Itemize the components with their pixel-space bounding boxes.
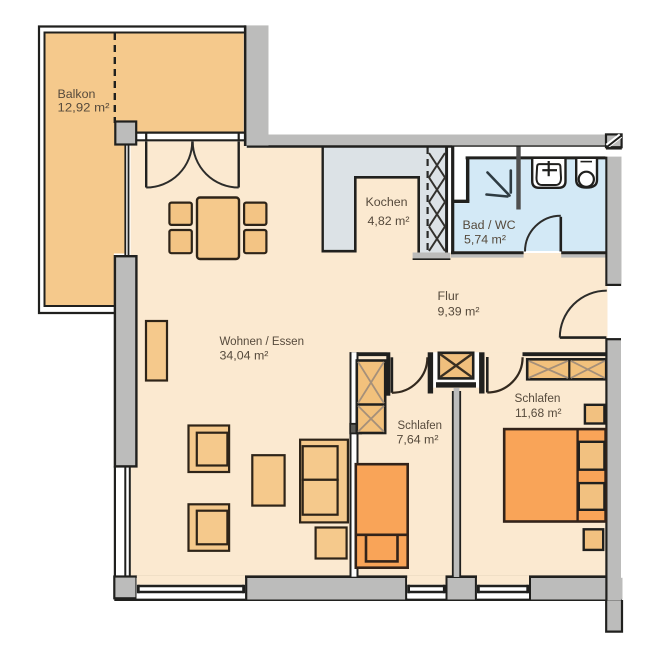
svg-text:Schlafen: Schlafen [398,418,443,432]
svg-text:12,92 m²: 12,92 m² [58,101,110,115]
svg-text:Wohnen / Essen: Wohnen / Essen [220,334,305,348]
svg-text:4,82 m²: 4,82 m² [368,214,410,228]
svg-text:Flur: Flur [438,289,459,303]
svg-text:9,39 m²: 9,39 m² [438,305,480,319]
svg-text:Kochen: Kochen [366,195,408,209]
svg-text:Bad / WC: Bad / WC [463,218,516,232]
svg-text:Schlafen: Schlafen [515,391,561,405]
svg-text:11,68 m²: 11,68 m² [515,406,562,420]
svg-text:34,04 m²: 34,04 m² [220,349,269,363]
svg-text:7,64 m²: 7,64 m² [397,433,439,447]
svg-text:5,74 m²: 5,74 m² [464,233,506,247]
svg-text:Balkon: Balkon [58,87,96,101]
